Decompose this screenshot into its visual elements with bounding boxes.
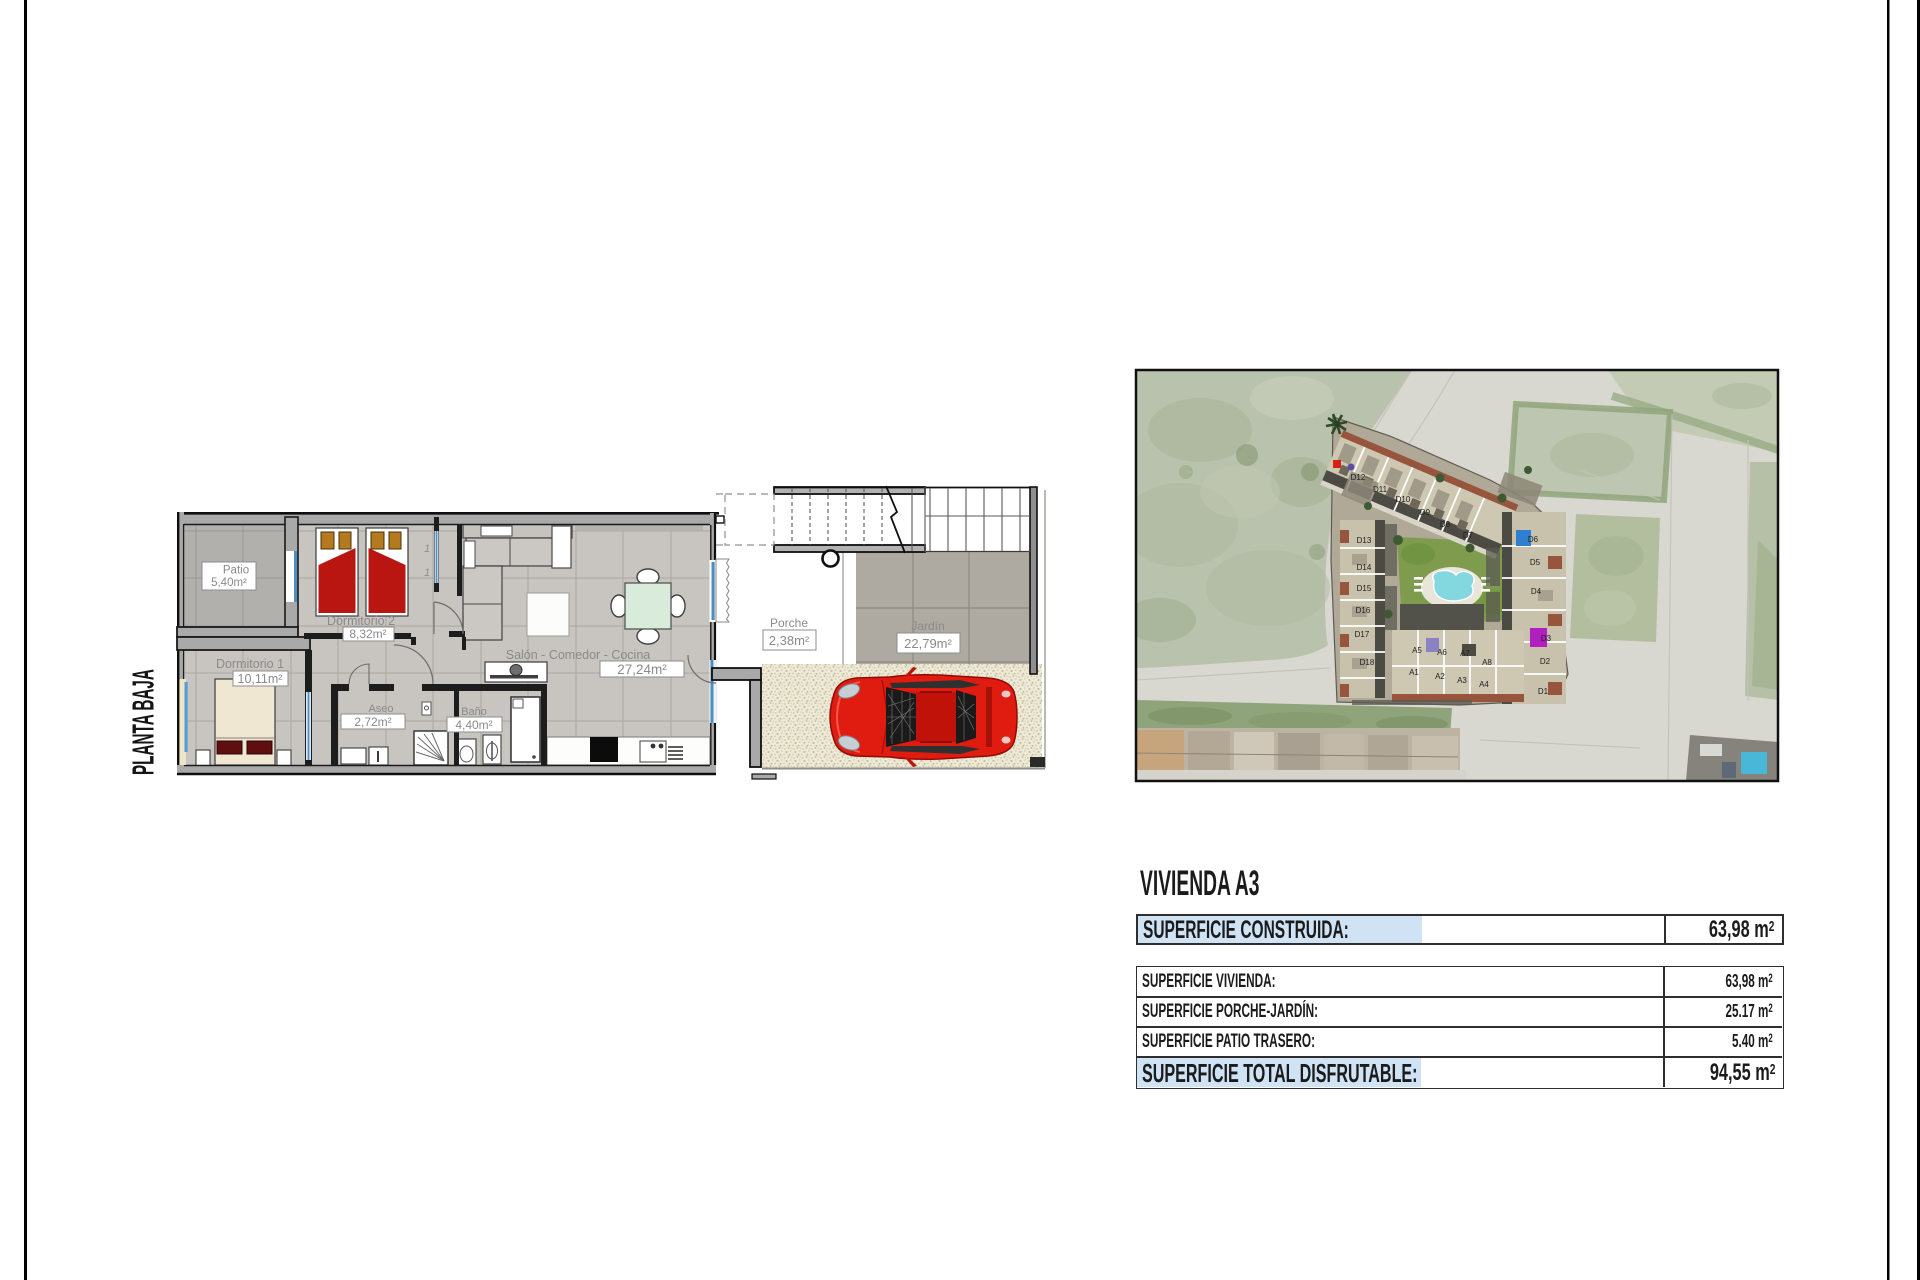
svg-text:A5: A5 (1412, 646, 1422, 655)
svg-text:A8: A8 (1482, 658, 1492, 667)
svg-text:1: 1 (424, 567, 430, 579)
svg-text:Jardín: Jardín (911, 619, 944, 633)
svg-text:PLANTA BAJA: PLANTA BAJA (127, 669, 161, 775)
svg-text:2,72m²: 2,72m² (354, 715, 391, 729)
svg-text:D13: D13 (1357, 536, 1372, 545)
svg-text:D5: D5 (1530, 558, 1541, 567)
svg-text:A4: A4 (1479, 680, 1489, 689)
svg-text:Salón - Comedor - Cocina: Salón - Comedor - Cocina (506, 648, 651, 662)
svg-text:D9: D9 (1420, 508, 1431, 517)
svg-text:8,32m²: 8,32m² (349, 627, 386, 641)
svg-text:4,40m²: 4,40m² (455, 718, 492, 732)
svg-text:A3: A3 (1457, 676, 1467, 685)
svg-text:D14: D14 (1357, 563, 1372, 572)
svg-text:D18: D18 (1360, 658, 1375, 667)
svg-text:D7: D7 (1463, 531, 1474, 540)
svg-text:D11: D11 (1373, 485, 1388, 494)
svg-text:D4: D4 (1531, 587, 1542, 596)
svg-text:D12: D12 (1351, 473, 1366, 482)
svg-text:Patio: Patio (223, 565, 249, 577)
svg-text:Dormitorio 2: Dormitorio 2 (327, 614, 395, 628)
svg-text:D8: D8 (1440, 520, 1451, 529)
svg-text:D10: D10 (1396, 495, 1411, 504)
svg-text:A1: A1 (1409, 668, 1419, 677)
svg-text:D1: D1 (1538, 687, 1549, 696)
svg-text:Porche: Porche (770, 616, 808, 630)
svg-text:D2: D2 (1540, 657, 1551, 666)
svg-text:Baño: Baño (461, 706, 487, 718)
svg-text:D15: D15 (1357, 584, 1372, 593)
svg-text:A7: A7 (1460, 649, 1470, 658)
svg-text:5,40m²: 5,40m² (211, 577, 247, 589)
svg-text:A2: A2 (1435, 672, 1445, 681)
svg-text:2,38m²: 2,38m² (769, 633, 810, 648)
svg-text:27,24m²: 27,24m² (617, 662, 667, 677)
svg-text:Dormitorio 1: Dormitorio 1 (216, 657, 284, 671)
svg-text:D3: D3 (1541, 634, 1552, 643)
svg-text:10,11m²: 10,11m² (238, 672, 283, 686)
svg-text:A6: A6 (1437, 648, 1447, 657)
svg-text:Aseo: Aseo (368, 703, 393, 715)
svg-text:D16: D16 (1356, 606, 1371, 615)
svg-text:D17: D17 (1355, 630, 1370, 639)
svg-text:1: 1 (424, 543, 430, 555)
svg-text:D6: D6 (1528, 535, 1539, 544)
svg-text:22,79m²: 22,79m² (904, 636, 952, 651)
